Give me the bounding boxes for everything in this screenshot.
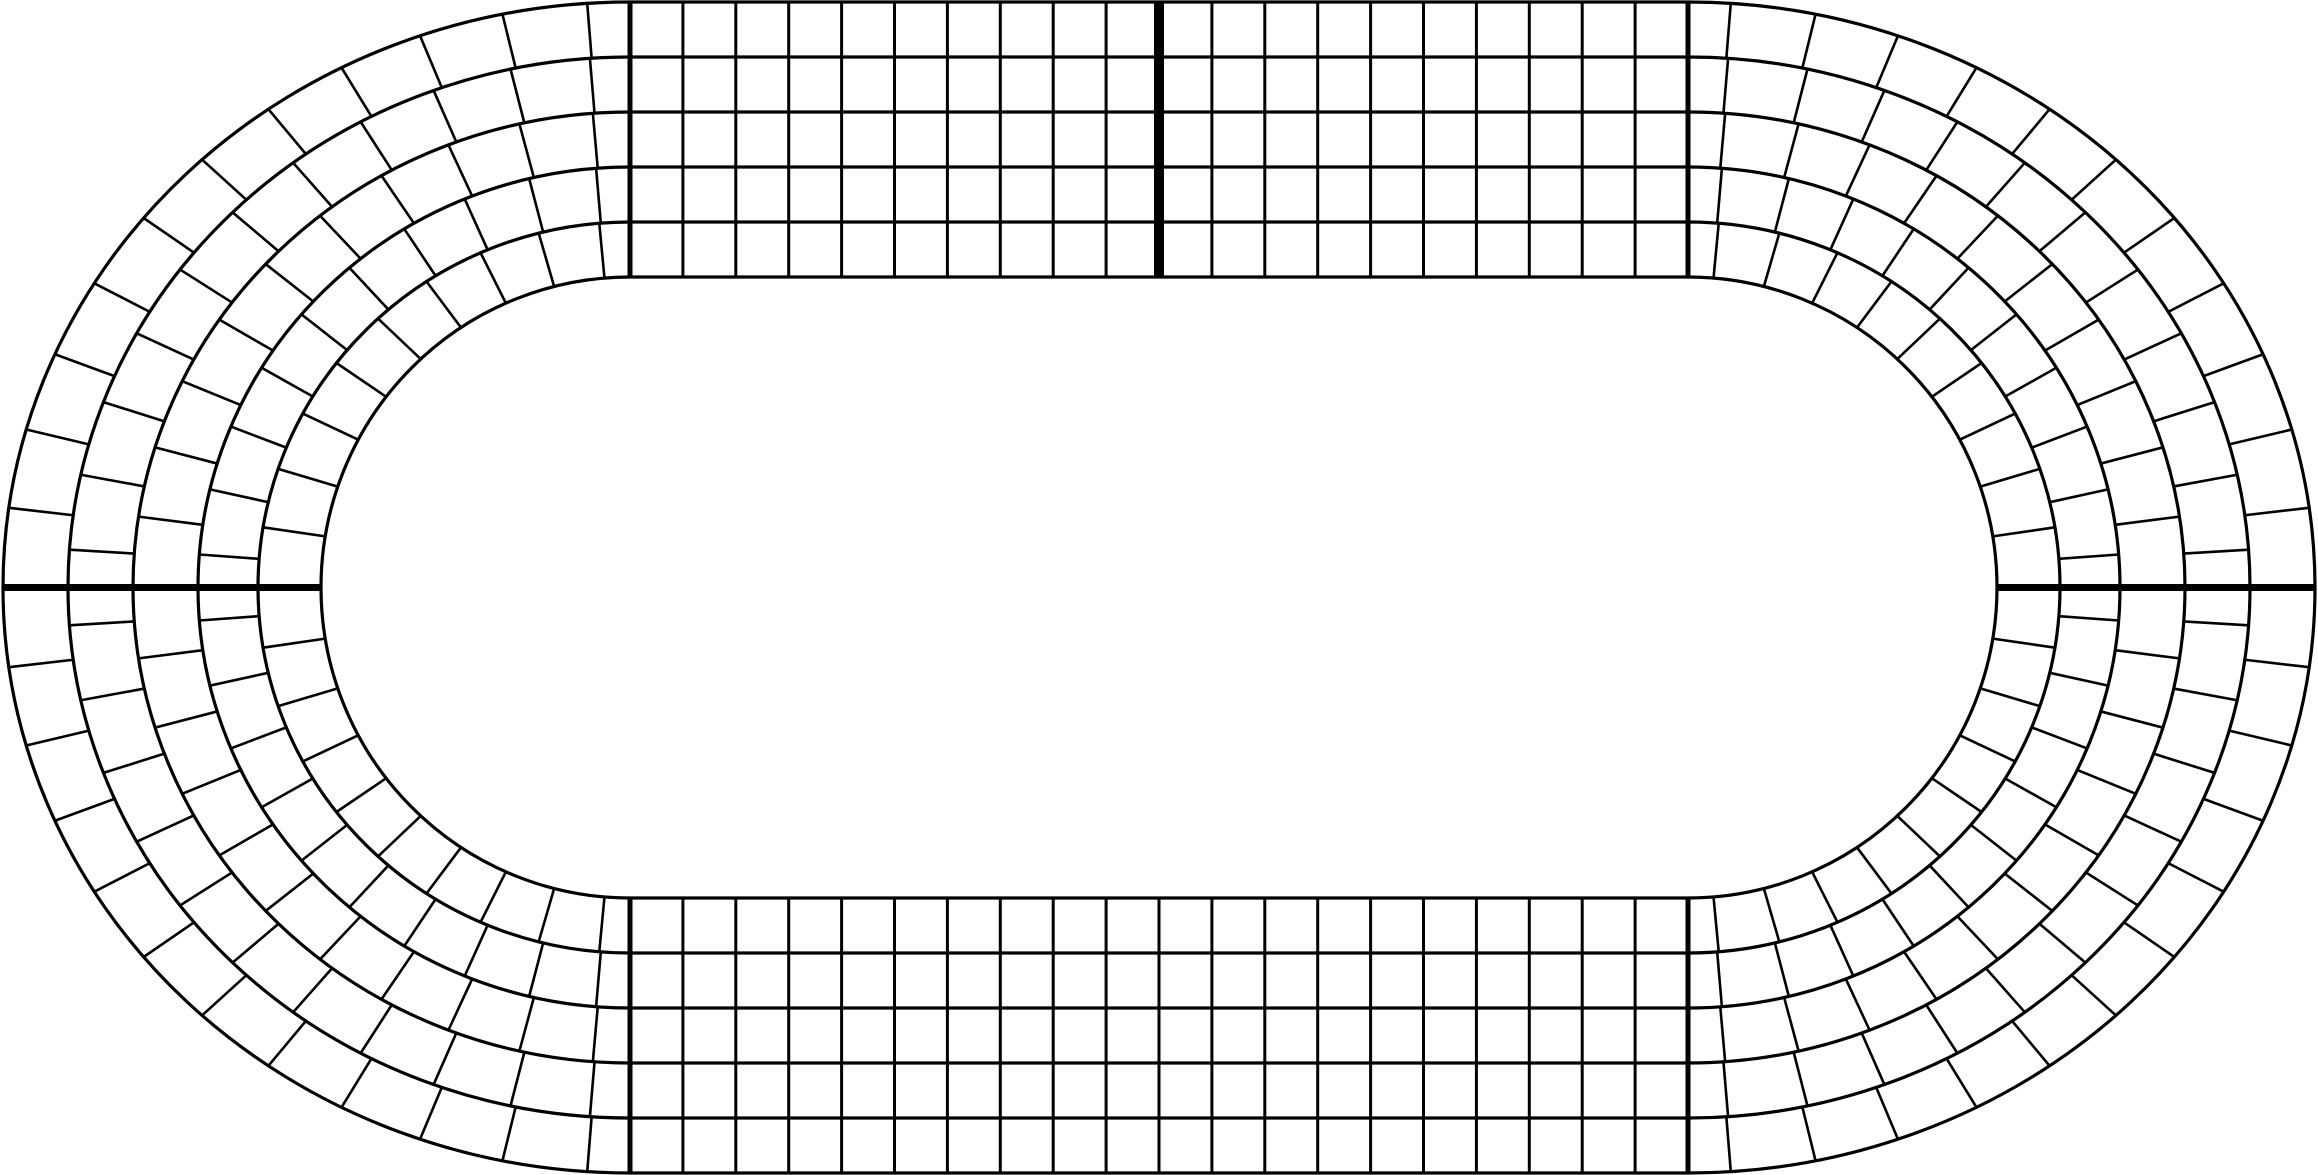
curve-cell-divider-left-lane-2 (511, 1052, 525, 1106)
curve-cell-divider-right-lane-3 (1720, 113, 1725, 168)
curve-cell-divider-right-lane-1 (2245, 508, 2309, 515)
curve-cell-divider-left-lane-2 (361, 122, 392, 170)
curve-cell-divider-right-lane-5 (1764, 233, 1779, 286)
curve-cell-divider-right-lane-3 (2115, 517, 2179, 525)
curve-cell-divider-left-lane-3 (182, 381, 241, 405)
curve-cell-divider-left-lane-3 (593, 113, 598, 168)
curve-cell-divider-right-lane-3 (2101, 447, 2163, 463)
curve-cell-divider-right-lane-2 (2124, 815, 2181, 841)
curve-cell-divider-right-lane-2 (2086, 270, 2138, 303)
curve-cell-divider-left-lane-3 (266, 264, 314, 301)
curve-cell-divider-left-lane-2 (233, 212, 279, 251)
curve-cell-divider-right-lane-3 (2005, 264, 2053, 301)
curve-cell-divider-right-lane-2 (1862, 90, 1885, 142)
curve-cell-divider-left-lane-3 (155, 447, 217, 463)
curve-cell-divider-right-lane-3 (2077, 770, 2136, 794)
curve-cell-divider-right-lane-3 (1846, 979, 1870, 1030)
curve-cell-divider-left-lane-4 (529, 179, 543, 232)
curve-cell-divider-right-lane-2 (1723, 1062, 1728, 1117)
curve-cell-divider-right-lane-2 (1926, 1005, 1957, 1053)
curve-cell-divider-left-lane-4 (465, 925, 488, 976)
curve-cell-divider-left-lane-4 (596, 952, 601, 1007)
curve-cell-divider-right-lane-4 (2032, 727, 2087, 748)
curve-cell-divider-left-lane-3 (182, 770, 241, 794)
curve-cell-divider-left-lane-4 (596, 168, 601, 223)
curve-cell-divider-left-lane-2 (103, 754, 164, 773)
curve-cell-divider-left-lane-3 (448, 145, 472, 196)
track-diagram (0, 0, 2318, 1175)
curve-cell-divider-left-lane-3 (139, 517, 203, 525)
curve-cell-divider-left-lane-1 (342, 68, 372, 117)
curve-cell-divider-left-lane-2 (590, 1062, 595, 1117)
curve-cell-divider-right-lane-1 (1947, 68, 1977, 117)
curve-cell-divider-left-lane-3 (448, 979, 472, 1030)
curve-cell-divider-left-lane-5 (539, 888, 554, 941)
curve-cell-divider-left-lane-2 (590, 58, 595, 113)
curve-cell-divider-left-lane-4 (349, 268, 388, 310)
curve-cell-divider-left-lane-2 (103, 402, 164, 421)
curve-cell-divider-left-lane-5 (481, 872, 506, 922)
curve-cell-divider-left-lane-5 (263, 639, 325, 648)
curve-cell-divider-right-lane-2 (1986, 968, 2025, 1012)
curve-cell-divider-right-lane-4 (2050, 489, 2108, 502)
curve-cell-divider-left-lane-4 (529, 943, 543, 996)
curve-cell-divider-right-lane-4 (2059, 616, 2119, 620)
curve-cell-divider-right-lane-2 (2124, 333, 2181, 359)
curve-cell-divider-left-lane-2 (511, 69, 525, 123)
curve-cell-divider-left-lane-4 (262, 368, 313, 397)
curve-cell-divider-left-lane-2 (81, 475, 145, 487)
curve-cell-divider-right-lane-4 (1882, 899, 1913, 946)
curve-cell-divider-right-lane-4 (1830, 199, 1853, 250)
curve-cell-divider-right-lane-4 (1882, 229, 1913, 276)
curve-cell-divider-left-lane-2 (434, 1033, 457, 1085)
curve-cell-divider-left-lane-4 (465, 199, 488, 250)
curve-cell-divider-left-lane-5 (599, 897, 604, 952)
curve-cell-divider-right-lane-4 (2059, 555, 2119, 559)
curve-cell-divider-left-lane-4 (231, 727, 286, 748)
curve-cell-divider-left-lane-3 (593, 1007, 598, 1062)
curve-cell-divider-right-lane-1 (1876, 1087, 1898, 1139)
curve-cell-divider-right-lane-3 (2045, 824, 2099, 855)
curve-cell-divider-right-lane-4 (1775, 943, 1789, 996)
curve-cell-divider-right-lane-1 (2124, 922, 2174, 957)
curve-cell-divider-right-lane-2 (2154, 754, 2215, 773)
curve-cell-divider-right-lane-3 (1784, 124, 1798, 178)
curve-cell-divider-left-lane-5 (539, 233, 554, 286)
curve-cell-divider-left-lane-1 (55, 354, 115, 376)
curve-cell-divider-right-lane-4 (1930, 865, 1969, 907)
curve-cell-divider-right-lane-3 (1957, 216, 1998, 259)
curve-cell-divider-right-lane-5 (1993, 527, 2055, 536)
curve-cell-divider-right-lane-5 (1960, 735, 2015, 761)
curve-cell-divider-left-lane-1 (202, 160, 246, 200)
curve-cell-divider-left-lane-5 (263, 527, 325, 536)
curve-cell-divider-left-lane-1 (26, 430, 89, 445)
curve-cell-divider-right-lane-4 (2032, 427, 2087, 448)
curve-cell-divider-left-lane-1 (268, 109, 305, 154)
curve-cell-divider-left-lane-3 (382, 952, 415, 1000)
curve-cell-divider-right-lane-1 (2245, 660, 2309, 667)
curve-cell-divider-right-lane-1 (1726, 1117, 1730, 1172)
curve-cell-divider-left-lane-2 (180, 270, 232, 303)
curve-cell-divider-left-lane-1 (342, 1059, 372, 1108)
curve-cell-divider-left-lane-4 (231, 427, 286, 448)
curve-cell-divider-left-lane-1 (420, 1087, 442, 1139)
curve-cell-divider-right-lane-3 (1904, 952, 1937, 1000)
curve-cell-divider-right-lane-4 (2050, 673, 2108, 686)
curve-cell-divider-left-lane-2 (69, 621, 134, 625)
curve-cell-divider-left-lane-2 (69, 550, 134, 554)
curve-cell-divider-left-lane-3 (320, 216, 361, 259)
curve-cell-divider-right-lane-2 (1986, 163, 2025, 207)
curve-cell-divider-left-lane-2 (233, 924, 279, 963)
curve-cell-divider-left-lane-3 (519, 997, 533, 1051)
curve-cell-divider-right-lane-1 (2229, 430, 2292, 445)
curve-cell-divider-left-lane-1 (55, 799, 115, 821)
curve-cell-divider-right-lane-3 (2005, 874, 2053, 911)
curve-cell-divider-left-lane-5 (427, 282, 461, 328)
curve-cell-divider-left-lane-3 (266, 874, 314, 911)
curve-cell-divider-left-lane-5 (481, 253, 506, 303)
curve-cell-divider-right-lane-2 (1794, 1052, 1808, 1106)
curve-cell-divider-right-lane-2 (2086, 872, 2138, 905)
curve-cell-divider-left-lane-5 (378, 319, 421, 359)
curve-cell-divider-left-lane-1 (144, 922, 194, 957)
curve-cell-divider-left-lane-2 (137, 815, 194, 841)
curve-cell-divider-right-lane-1 (1802, 14, 1815, 68)
curve-cell-divider-left-lane-4 (210, 489, 268, 502)
curve-cell-divider-left-lane-5 (427, 847, 461, 893)
curve-cell-divider-right-lane-3 (1957, 916, 1998, 959)
curve-cell-divider-left-lane-1 (94, 863, 150, 892)
curve-cell-divider-right-lane-5 (1980, 688, 2040, 706)
curve-cell-divider-right-lane-2 (2174, 475, 2238, 487)
curve-cell-divider-right-lane-5 (1857, 282, 1891, 328)
curve-cell-divider-left-lane-3 (320, 916, 361, 959)
curve-cell-divider-right-lane-2 (1723, 58, 1728, 113)
curve-cell-divider-right-lane-2 (2184, 621, 2249, 625)
curve-cell-divider-right-lane-5 (1960, 414, 2015, 440)
curve-cell-divider-left-lane-3 (219, 320, 273, 351)
curve-cell-divider-right-lane-1 (1726, 3, 1730, 58)
curve-cell-divider-left-lane-2 (180, 872, 232, 905)
curve-cell-divider-left-lane-1 (587, 3, 591, 58)
curve-cell-divider-left-lane-5 (278, 469, 338, 487)
curve-cell-divider-right-lane-4 (1717, 952, 1722, 1007)
curve-cell-divider-right-lane-5 (1897, 319, 1940, 359)
curve-cell-divider-right-lane-1 (2072, 160, 2116, 200)
curve-cell-divider-left-lane-2 (361, 1005, 392, 1053)
curve-cell-divider-left-lane-4 (210, 673, 268, 686)
curve-cell-divider-right-lane-2 (1862, 1033, 1885, 1085)
curve-cell-divider-left-lane-5 (599, 223, 604, 278)
curve-cell-divider-left-lane-5 (303, 735, 358, 761)
curve-cell-divider-left-lane-4 (262, 778, 313, 807)
lane-boundary-5 (321, 277, 1997, 898)
curve-cell-divider-right-lane-2 (2039, 212, 2085, 251)
curve-cell-divider-right-lane-3 (2045, 320, 2099, 351)
curve-cell-divider-right-lane-3 (1846, 145, 1870, 196)
curve-cell-divider-right-lane-1 (1802, 1107, 1815, 1161)
curve-cell-divider-left-lane-2 (293, 163, 332, 207)
curve-cell-divider-right-lane-4 (1775, 179, 1789, 232)
curve-cell-divider-right-lane-5 (1812, 253, 1837, 303)
curve-cell-divider-left-lane-1 (94, 283, 150, 312)
curve-cell-divider-left-lane-3 (382, 176, 415, 224)
curve-cell-divider-right-lane-1 (2012, 1021, 2049, 1066)
curve-cell-divider-right-lane-1 (2168, 283, 2224, 312)
curve-cell-divider-right-lane-5 (1764, 888, 1779, 941)
curve-cell-divider-left-lane-3 (219, 824, 273, 855)
curve-cell-divider-left-lane-4 (302, 314, 348, 350)
curve-cell-divider-right-lane-5 (1857, 847, 1891, 893)
curve-cell-divider-right-lane-1 (2168, 863, 2224, 892)
curve-cell-divider-left-lane-1 (587, 1117, 591, 1172)
curve-cell-divider-right-lane-4 (1830, 925, 1853, 976)
curve-cell-divider-right-lane-3 (2077, 381, 2136, 405)
curve-cell-divider-right-lane-4 (2005, 778, 2056, 807)
lane-boundary-4 (258, 222, 2060, 953)
curve-cell-divider-left-lane-1 (26, 731, 89, 746)
curve-cell-divider-right-lane-1 (1947, 1059, 1977, 1108)
curve-cell-divider-left-lane-4 (404, 899, 435, 946)
curve-cell-divider-right-lane-5 (1993, 639, 2055, 648)
curve-cell-divider-right-lane-1 (2203, 799, 2263, 821)
curve-cell-divider-right-lane-3 (1720, 1007, 1725, 1062)
curve-cell-divider-right-lane-2 (2174, 689, 2238, 701)
curve-cell-divider-left-lane-3 (155, 711, 217, 727)
curve-cell-divider-left-lane-5 (336, 778, 386, 812)
curve-cell-divider-right-lane-4 (1971, 314, 2017, 350)
curve-cell-divider-right-lane-1 (1876, 36, 1898, 88)
curve-cell-divider-right-lane-5 (1932, 363, 1982, 397)
curve-cell-divider-left-lane-1 (9, 508, 73, 515)
track-diagram-canvas (0, 0, 2318, 1175)
curve-cell-divider-left-lane-1 (9, 660, 73, 667)
lane-boundary-3 (198, 167, 2120, 1008)
curve-cell-divider-left-lane-3 (519, 124, 533, 178)
curve-cell-divider-left-lane-4 (349, 865, 388, 907)
curve-cell-divider-right-lane-4 (2005, 368, 2056, 397)
curve-cell-divider-left-lane-4 (404, 229, 435, 276)
curve-cell-divider-right-lane-1 (2072, 975, 2116, 1015)
curve-cell-divider-right-lane-4 (1717, 168, 1722, 223)
curve-cell-divider-right-lane-2 (1794, 69, 1808, 123)
curve-cell-divider-right-lane-1 (2012, 109, 2049, 154)
curve-cell-divider-left-lane-4 (199, 555, 259, 559)
curve-cell-divider-left-lane-5 (303, 414, 358, 440)
curve-cell-divider-right-lane-3 (1904, 176, 1937, 224)
curve-cell-divider-left-lane-2 (81, 689, 145, 701)
curve-cell-divider-left-lane-2 (434, 90, 457, 142)
curve-cell-divider-right-lane-2 (2154, 402, 2215, 421)
curve-cell-divider-left-lane-1 (420, 36, 442, 88)
curve-cell-divider-right-lane-5 (1897, 816, 1940, 856)
curve-cell-divider-right-lane-1 (2124, 218, 2174, 253)
curve-cell-divider-left-lane-4 (302, 825, 348, 861)
curve-cell-divider-left-lane-1 (502, 1107, 515, 1161)
curve-cell-divider-left-lane-1 (268, 1021, 305, 1066)
curve-cell-divider-left-lane-5 (378, 816, 421, 856)
curve-cell-divider-right-lane-2 (1926, 122, 1957, 170)
curve-cell-divider-left-lane-5 (278, 688, 338, 706)
curve-cell-divider-left-lane-2 (137, 333, 194, 359)
curve-cell-divider-right-lane-3 (2101, 711, 2163, 727)
curve-cell-divider-left-lane-1 (144, 218, 194, 253)
curve-cell-divider-right-lane-5 (1812, 872, 1837, 922)
curve-cell-divider-right-lane-5 (1714, 897, 1719, 952)
curve-cell-divider-left-lane-4 (199, 616, 259, 620)
curve-cell-divider-right-lane-5 (1932, 778, 1982, 812)
curve-cell-divider-left-lane-3 (139, 650, 203, 658)
curve-cell-divider-left-lane-1 (502, 14, 515, 68)
curve-cell-divider-right-lane-1 (2229, 731, 2292, 746)
curve-cell-divider-right-lane-1 (2203, 354, 2263, 376)
curve-cell-divider-right-lane-2 (2184, 550, 2249, 554)
curve-cell-divider-right-lane-4 (1930, 268, 1969, 310)
curve-cell-divider-right-lane-3 (2115, 650, 2179, 658)
curve-cell-divider-left-lane-1 (202, 975, 246, 1015)
curve-cell-divider-right-lane-4 (1971, 825, 2017, 861)
curve-cell-divider-right-lane-3 (1784, 997, 1798, 1051)
curve-cell-divider-left-lane-5 (336, 363, 386, 397)
curve-cell-divider-right-lane-5 (1980, 469, 2040, 487)
curve-cell-divider-left-lane-2 (293, 968, 332, 1012)
curve-cell-divider-right-lane-5 (1714, 223, 1719, 278)
curve-cell-divider-right-lane-2 (2039, 924, 2085, 963)
